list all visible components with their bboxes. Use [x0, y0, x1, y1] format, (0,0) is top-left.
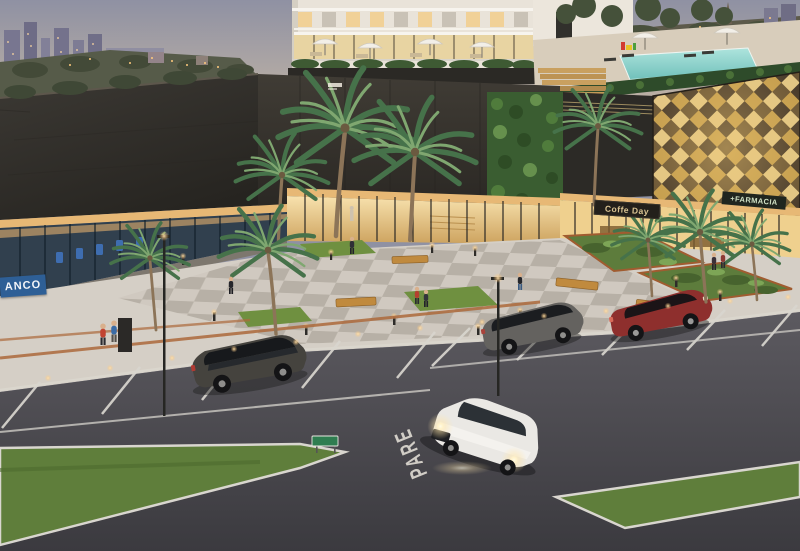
sign-totem — [118, 318, 132, 352]
bank-storefront-sign: ANCO — [0, 274, 47, 297]
mall-exterior-render: ANCO Coffe Day +FARMACIA PARE — [0, 0, 800, 551]
upper-terrace — [563, 92, 655, 200]
logo-mark-icon — [328, 88, 337, 90]
residential-tower — [288, 0, 538, 84]
building-logo — [328, 83, 346, 93]
left-wing-roof — [0, 74, 287, 220]
logo-mark-icon — [328, 83, 342, 87]
